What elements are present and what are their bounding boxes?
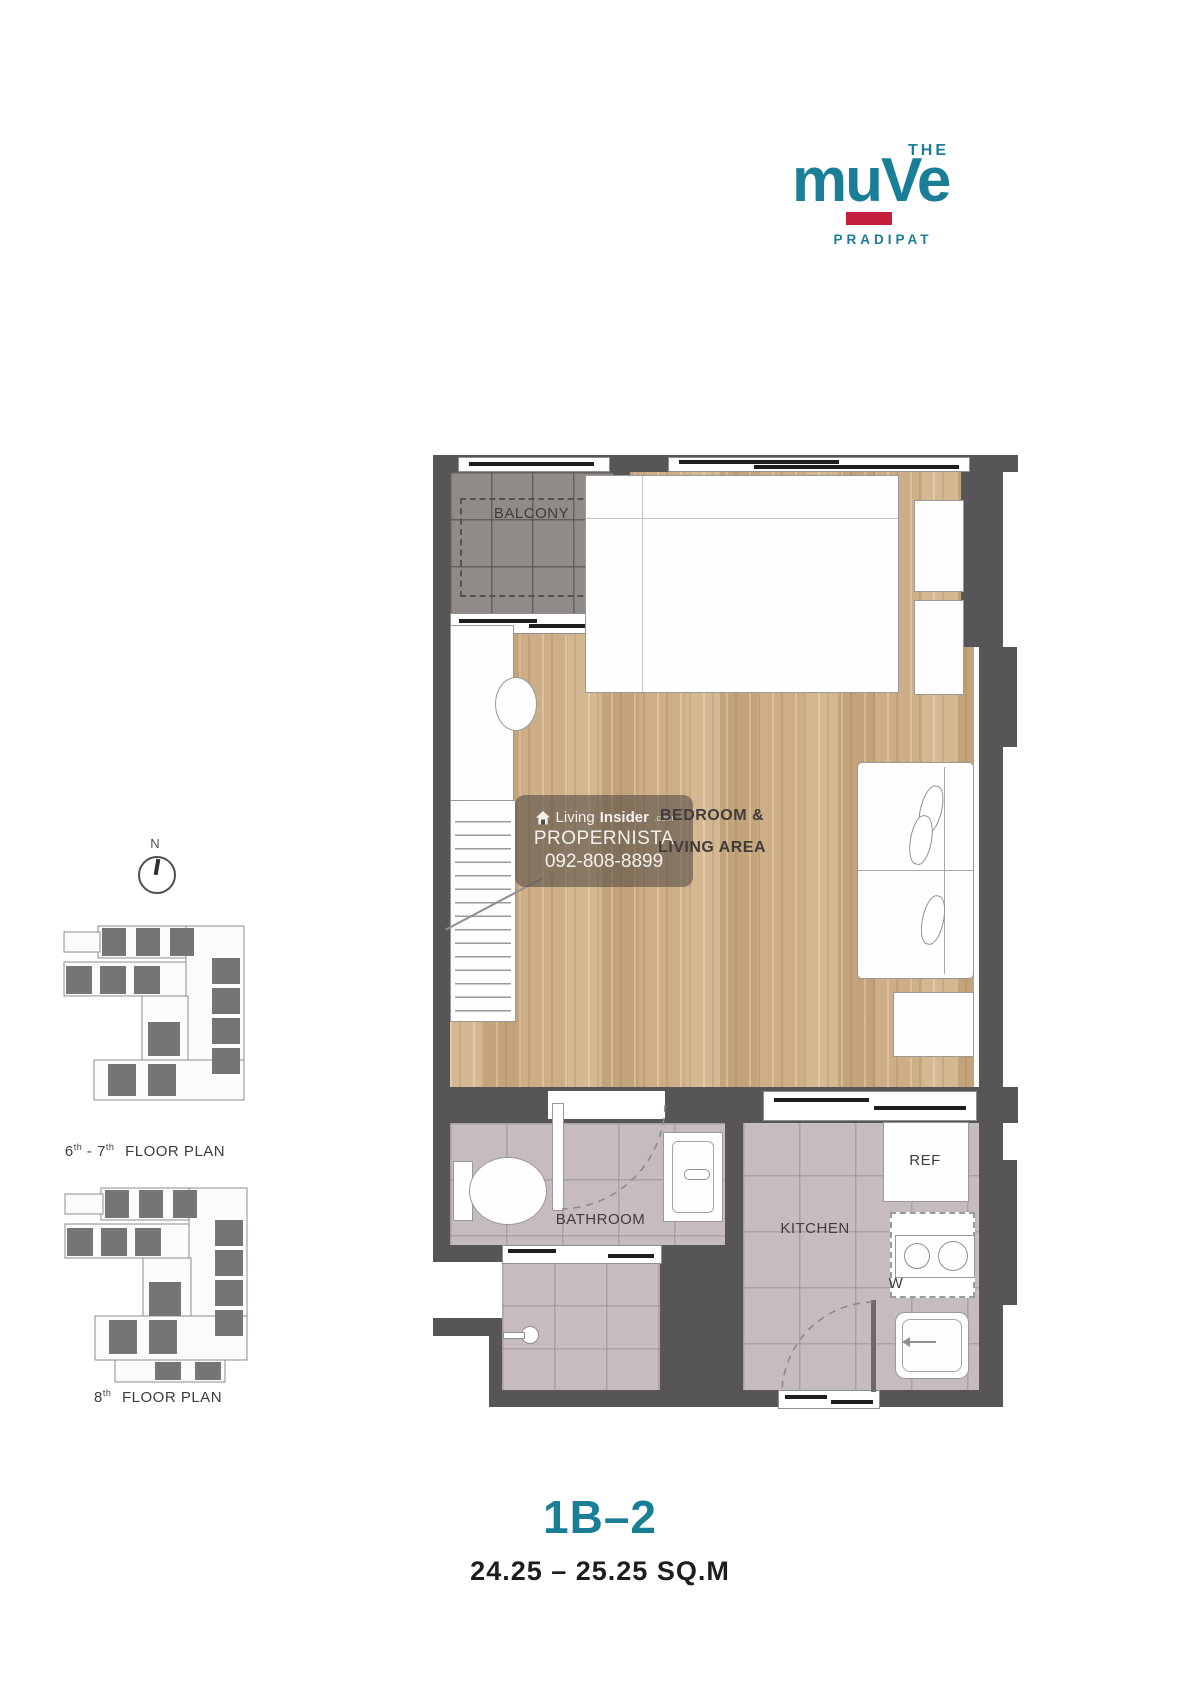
faucet-icon xyxy=(906,1341,936,1343)
floor-number: 6 xyxy=(65,1143,74,1160)
compass-icon xyxy=(138,856,176,894)
bathroom-door-opening xyxy=(548,1091,665,1119)
balcony-window xyxy=(458,457,610,472)
shower-arm-icon xyxy=(503,1332,525,1339)
logo-red-bar xyxy=(846,212,892,225)
window-sash xyxy=(469,462,594,466)
bathroom-sink xyxy=(663,1132,723,1222)
bathroom-label: BATHROOM xyxy=(523,1211,678,1228)
window-sash xyxy=(774,1098,869,1102)
wall xyxy=(660,1262,743,1407)
logo-subtitle: PRADIPAT xyxy=(788,232,978,247)
floor-plan-6-7-thumbnail xyxy=(52,922,252,1140)
unit-code: 1B–2 xyxy=(0,1490,1200,1544)
door-sash xyxy=(459,619,537,623)
burner-icon xyxy=(904,1243,930,1269)
window-sash xyxy=(874,1106,966,1110)
watermark-brand-a: Living xyxy=(556,809,595,826)
house-icon xyxy=(535,810,551,826)
mini-plan-8-drawing xyxy=(55,1186,255,1386)
floor-plan-text: FLOOR PLAN xyxy=(125,1143,225,1160)
faucet-arrow-icon xyxy=(902,1337,910,1347)
kitchen-sink xyxy=(895,1312,969,1379)
ordinal-suffix: th xyxy=(103,1388,112,1398)
ordinal-suffix: th xyxy=(106,1142,115,1152)
unit-area-range: 24.25 – 25.25 SQ.M xyxy=(0,1556,1200,1587)
floor-plan-8-label: 8th FLOOR PLAN xyxy=(38,1388,278,1406)
compass-needle xyxy=(154,859,161,875)
kitchen-label: KITCHEN xyxy=(745,1220,885,1237)
bedroom-label-line2: LIVING AREA xyxy=(631,839,793,857)
sofa xyxy=(857,762,974,979)
wardrobe xyxy=(450,800,516,1022)
bathroom-door-leaf xyxy=(552,1103,564,1211)
wall xyxy=(433,455,450,1262)
compass-north-label: N xyxy=(143,836,167,851)
bed xyxy=(585,475,899,693)
bed-line xyxy=(642,476,643,692)
mini-plan-6-7-drawing xyxy=(52,922,252,1140)
brochure-page: { "page": {"width": 1200, "height": 1687… xyxy=(0,0,1200,1687)
entry-door-leaf xyxy=(871,1300,876,1392)
separator: - xyxy=(87,1143,93,1160)
bedside-panel xyxy=(914,500,964,592)
floor-plan-6-7-label: 6th - 7th FLOOR PLAN xyxy=(25,1142,265,1160)
sofa-seat-divider xyxy=(858,870,973,871)
washer-label: W xyxy=(881,1275,911,1292)
bed-line xyxy=(586,518,898,519)
sink-basin xyxy=(902,1319,962,1372)
door-sash xyxy=(508,1249,556,1253)
wardrobe-hangers xyxy=(455,809,511,1013)
door-sash xyxy=(608,1254,654,1258)
floor-plan-8-thumbnail xyxy=(55,1186,255,1386)
unit-floor-plan: REF W BALCONY BEDROOM & LIVING AREA BATH… xyxy=(433,455,1018,1410)
door-sash xyxy=(831,1400,873,1404)
bedside-panel xyxy=(914,600,964,695)
entry-opening xyxy=(778,1390,880,1409)
logo-wordmark: muVe xyxy=(792,150,949,212)
bedroom-label-line1: BEDROOM & xyxy=(631,807,793,825)
brand-logo: THE muVe PRADIPAT xyxy=(758,130,1018,260)
window-sash xyxy=(679,460,839,464)
stove xyxy=(895,1235,975,1278)
floor-number: 8 xyxy=(94,1389,103,1406)
wall-column xyxy=(979,647,1017,747)
shower-sliding-door xyxy=(502,1245,662,1264)
cushion-leaf xyxy=(906,813,936,866)
faucet-icon xyxy=(684,1169,710,1180)
wall-column xyxy=(979,1160,1017,1305)
floor-plan-text: FLOOR PLAN xyxy=(122,1389,222,1406)
bedroom-window xyxy=(668,457,970,472)
kitchen-window xyxy=(763,1091,977,1121)
refrigerator-label: REF xyxy=(883,1152,967,1169)
burner-icon xyxy=(938,1241,968,1271)
desk-chair xyxy=(495,677,537,731)
balcony-label: BALCONY xyxy=(453,505,610,522)
door-sash xyxy=(785,1395,827,1399)
ordinal-suffix: th xyxy=(74,1142,83,1152)
window-sash xyxy=(754,465,959,469)
coffee-table xyxy=(893,992,974,1057)
floor-number: 7 xyxy=(97,1143,106,1160)
wall xyxy=(489,1390,1000,1407)
